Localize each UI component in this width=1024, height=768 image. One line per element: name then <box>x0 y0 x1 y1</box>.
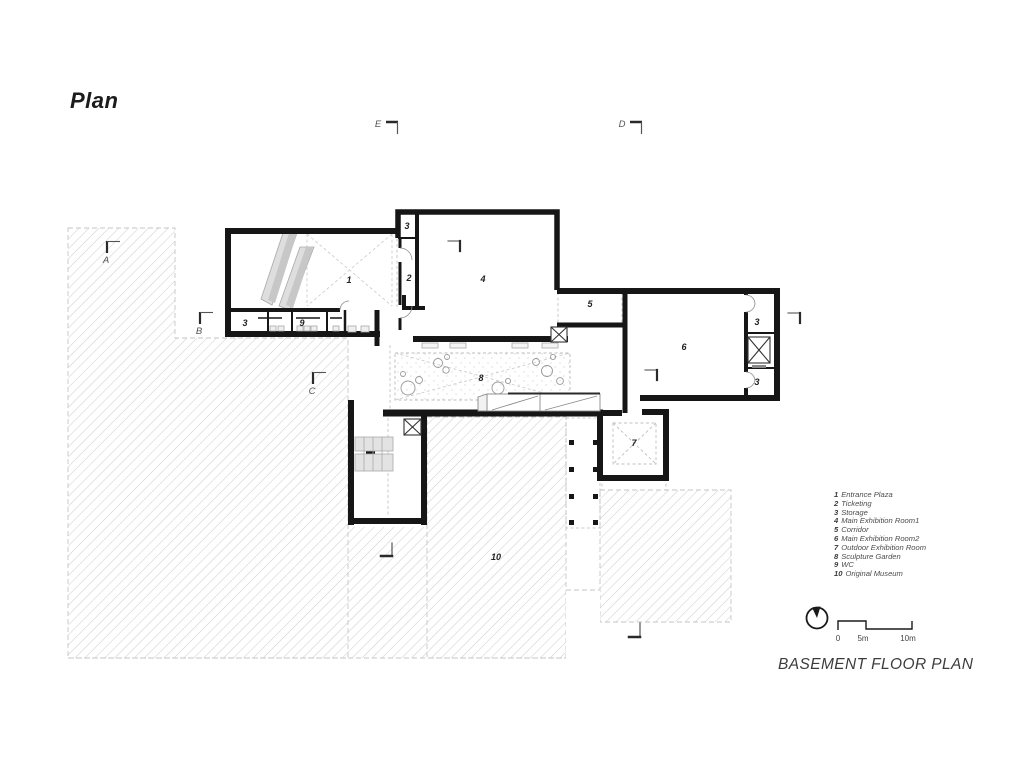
room-label-3b: 3 <box>242 318 247 328</box>
room-label-9: 9 <box>299 318 304 328</box>
section-label-b: B <box>196 326 203 337</box>
scale-bar: 0 5m 10m <box>836 621 916 643</box>
legend: 1Entrance Plaza 2Ticketing 3Storage 4Mai… <box>834 491 926 579</box>
room-label-1: 1 <box>346 275 351 285</box>
room-label-3c: 3 <box>754 317 759 327</box>
scale-label-0: 0 <box>836 634 841 643</box>
room-label-7: 7 <box>631 438 637 448</box>
escalator-group <box>261 233 314 310</box>
room-label-5: 5 <box>587 299 593 309</box>
section-label-a: A <box>102 255 109 266</box>
room-label-8: 8 <box>478 373 483 383</box>
section-marker-e: E <box>375 119 398 134</box>
section-label-d: D <box>619 119 626 130</box>
floor-plan-sheet: E D A B C <box>0 0 1024 768</box>
drawing-title: BASEMENT FLOOR PLAN <box>778 656 948 674</box>
north-arrow <box>807 607 828 629</box>
legend-item: 10Original Museum <box>834 570 926 579</box>
room-label-6: 6 <box>681 342 687 352</box>
scale-label-10m: 10m <box>900 634 916 643</box>
section-label-e: E <box>375 119 382 130</box>
section-marker-b: B <box>196 312 213 337</box>
room-label-2: 2 <box>405 273 411 283</box>
room-label-3d: 3 <box>754 377 759 387</box>
entrance-plaza-interior <box>307 234 392 306</box>
room-label-10: 10 <box>491 552 501 562</box>
page-title: Plan <box>70 88 118 114</box>
scale-label-5m: 5m <box>857 634 868 643</box>
floor-plan-drawing: E D A B C <box>0 0 1024 768</box>
room-label-4: 4 <box>479 274 485 284</box>
colonnade-columns <box>569 440 598 525</box>
section-marker-d: D <box>619 119 642 134</box>
room-label-3a: 3 <box>404 221 409 231</box>
section-label-c: C <box>309 386 316 397</box>
